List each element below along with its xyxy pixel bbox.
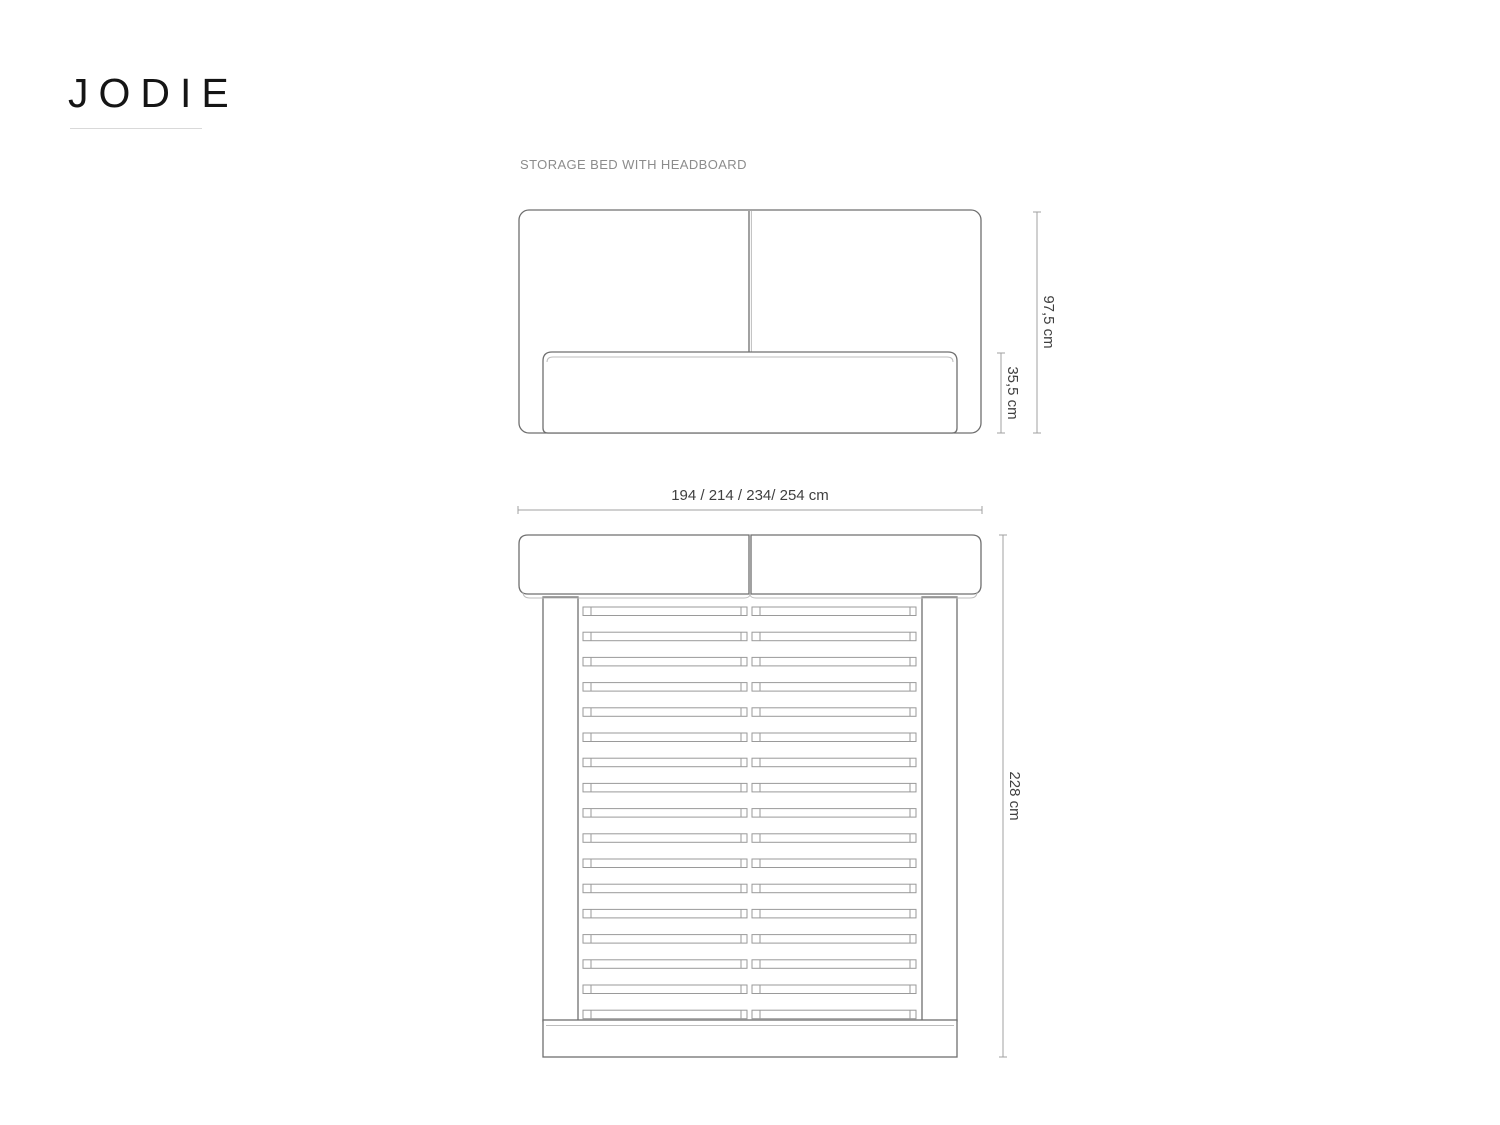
- top-left-rail: [543, 597, 578, 1021]
- slat-row-2-right: [752, 632, 916, 641]
- slat-row-11-left: [583, 859, 747, 868]
- slat-row-2-left: [583, 632, 747, 641]
- slat-row-1-right: [752, 607, 916, 616]
- slat-row-13-left: [583, 909, 747, 918]
- slat-row-16-left: [583, 985, 747, 994]
- slat-row-5-right: [752, 708, 916, 717]
- slat-row-9-left: [583, 809, 747, 818]
- slat-row-9-right: [752, 809, 916, 818]
- top-right-rail: [922, 597, 957, 1021]
- slat-row-8-left: [583, 783, 747, 792]
- slat-row-3-right: [752, 657, 916, 666]
- slat-row-11-right: [752, 859, 916, 868]
- front-dim-width: [518, 506, 982, 514]
- top-view: [519, 535, 1007, 1057]
- slat-row-12-left: [583, 884, 747, 893]
- dim-label-length: 228 cm: [1006, 771, 1023, 820]
- slat-row-4-left: [583, 683, 747, 692]
- slat-row-6-left: [583, 733, 747, 742]
- dim-label-widths: 194 / 214 / 234/ 254 cm: [671, 487, 829, 504]
- slat-row-10-left: [583, 834, 747, 843]
- slat-row-12-right: [752, 884, 916, 893]
- slat-row-6-right: [752, 733, 916, 742]
- top-headboard-right: [751, 535, 981, 594]
- slat-row-14-right: [752, 935, 916, 944]
- slat-row-15-right: [752, 960, 916, 969]
- front-storage-panel: [543, 352, 957, 433]
- slat-row-7-left: [583, 758, 747, 767]
- dim-label-total-height: 97,5 cm: [1040, 295, 1057, 348]
- front-view: [518, 210, 1041, 514]
- slat-row-3-left: [583, 657, 747, 666]
- slat-row-17-right: [752, 1010, 916, 1019]
- slat-row-7-right: [752, 758, 916, 767]
- slat-row-15-left: [583, 960, 747, 969]
- technical-drawing: [0, 0, 1500, 1125]
- dim-label-base-height: 35,5 cm: [1004, 366, 1021, 419]
- slat-row-14-left: [583, 935, 747, 944]
- slat-row-5-left: [583, 708, 747, 717]
- slat-row-1-left: [583, 607, 747, 616]
- slat-row-13-right: [752, 909, 916, 918]
- slat-row-16-right: [752, 985, 916, 994]
- top-headboard-left: [519, 535, 749, 594]
- slat-row-10-right: [752, 834, 916, 843]
- slat-row-8-right: [752, 783, 916, 792]
- slat-row-17-left: [583, 1010, 747, 1019]
- slats-group: [583, 607, 916, 1019]
- slat-row-4-right: [752, 683, 916, 692]
